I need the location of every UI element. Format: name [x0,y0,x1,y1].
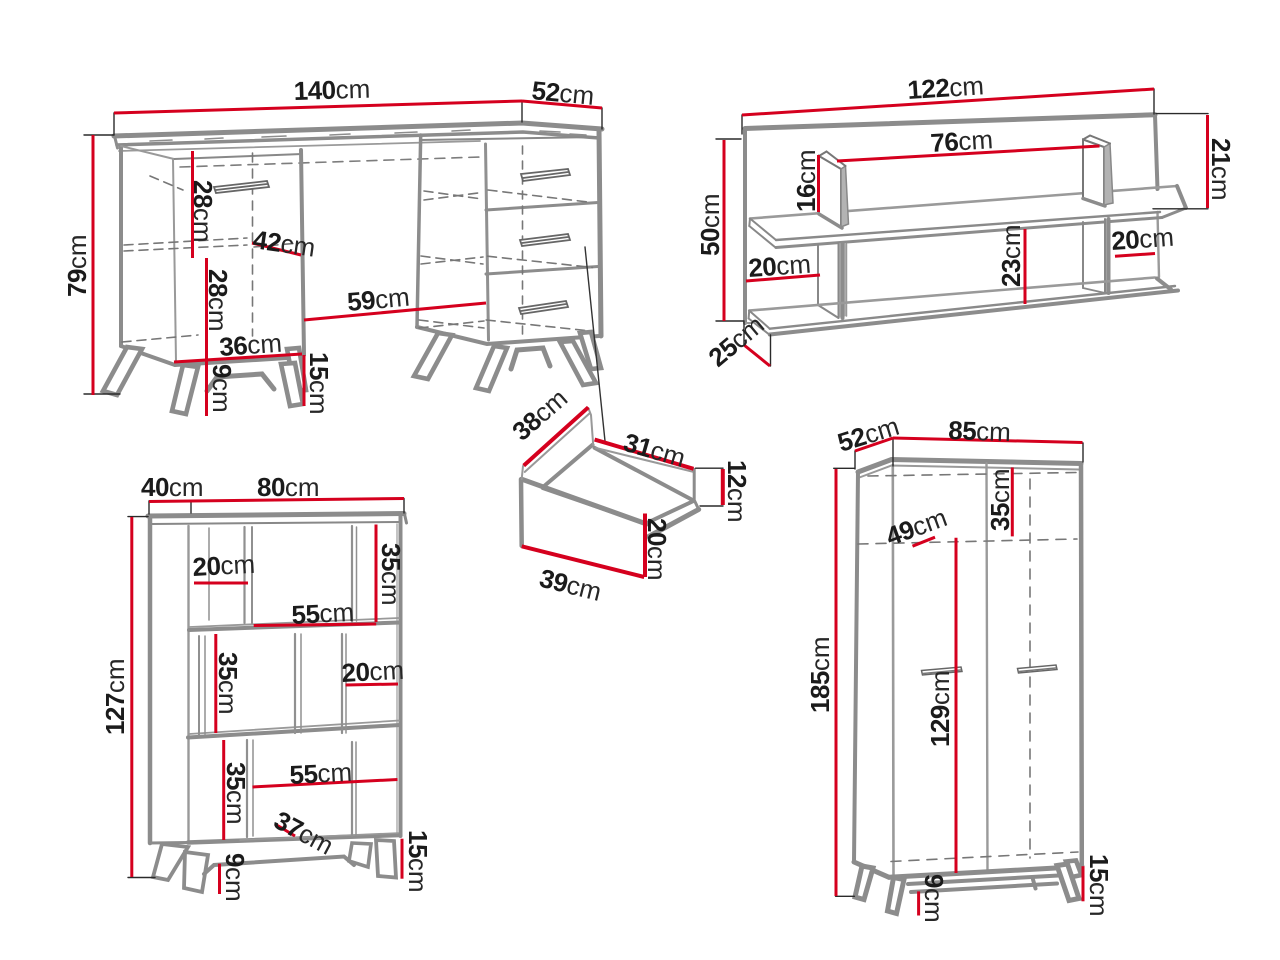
svg-text:9cm: 9cm [207,364,237,413]
svg-text:20cm: 20cm [1110,222,1175,256]
svg-text:76cm: 76cm [930,124,994,158]
svg-text:9cm: 9cm [220,853,250,902]
svg-text:127cm: 127cm [100,658,130,735]
svg-text:55cm: 55cm [291,597,355,630]
svg-text:36cm: 36cm [218,328,283,362]
svg-text:122cm: 122cm [907,70,985,105]
svg-text:85cm: 85cm [948,415,1012,447]
svg-text:15cm: 15cm [1084,854,1114,917]
svg-text:80cm: 80cm [257,472,320,502]
svg-text:28cm: 28cm [188,180,218,243]
svg-text:23cm: 23cm [996,224,1026,287]
svg-text:35cm: 35cm [376,543,406,606]
svg-text:185cm: 185cm [805,636,835,713]
svg-text:35cm: 35cm [985,468,1015,531]
svg-text:40cm: 40cm [141,472,204,502]
svg-text:16cm: 16cm [791,149,821,212]
svg-text:59cm: 59cm [346,282,411,317]
svg-text:21cm: 21cm [1206,138,1236,201]
svg-text:15cm: 15cm [403,830,433,893]
svg-text:20cm: 20cm [642,518,672,581]
svg-text:20cm: 20cm [341,655,405,688]
svg-text:15cm: 15cm [304,352,334,415]
svg-text:20cm: 20cm [192,549,256,582]
svg-text:9cm: 9cm [919,874,949,923]
svg-text:35cm: 35cm [213,652,243,715]
svg-text:12cm: 12cm [722,460,752,523]
svg-text:50cm: 50cm [695,193,725,256]
svg-text:35cm: 35cm [221,762,251,825]
svg-text:129cm: 129cm [925,670,955,747]
svg-text:20cm: 20cm [747,249,812,283]
svg-text:55cm: 55cm [289,757,353,790]
svg-text:140cm: 140cm [293,74,370,106]
svg-text:52cm: 52cm [530,75,595,111]
svg-text:79cm: 79cm [62,234,92,297]
svg-text:28cm: 28cm [203,269,233,332]
